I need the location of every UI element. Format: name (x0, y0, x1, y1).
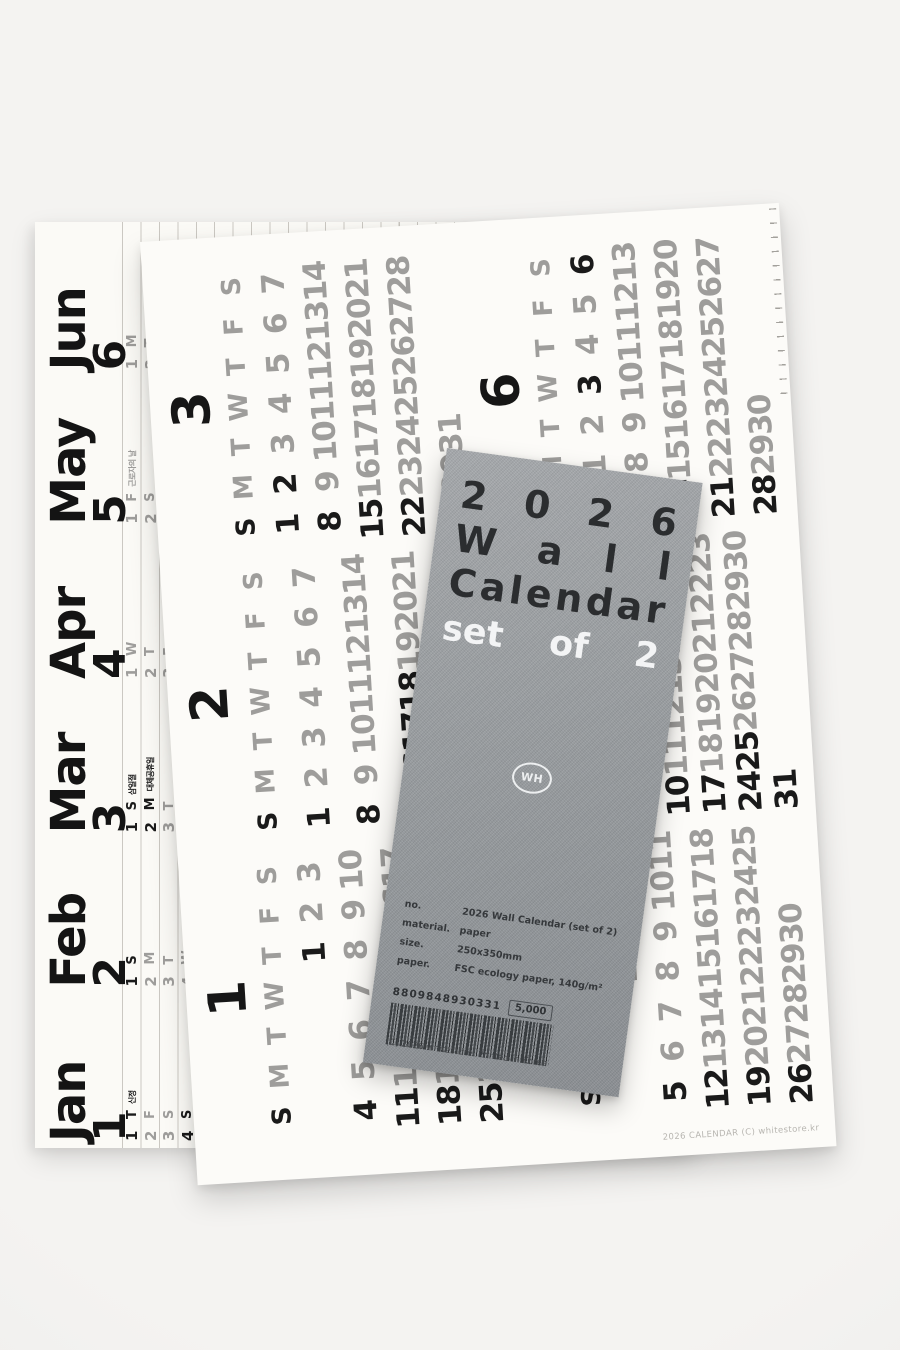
list-day-row: 1F근로자의 날 (123, 376, 141, 530)
date-cell: 13 (696, 1028, 734, 1070)
date-cell: 11 (343, 674, 381, 716)
date-cell: 8 (311, 501, 349, 543)
date-cell: 7 (652, 991, 690, 1033)
date-cell: 5 (657, 1071, 695, 1113)
date-cell: 22 (733, 945, 771, 987)
weekday-letter: T (143, 647, 158, 656)
weekday-header-cell: F (240, 600, 272, 642)
weekday-header-cell: T (243, 640, 275, 682)
date-cell: 13 (299, 300, 337, 342)
date-cell (448, 374, 450, 414)
date-cell: 19 (741, 1066, 779, 1108)
date-cell: 16 (689, 908, 727, 950)
holiday-note: 신정 (127, 1090, 138, 1104)
list-month-label: May5 (35, 376, 132, 530)
day-number: 2 (142, 1125, 160, 1141)
date-cell: 18 (684, 828, 722, 870)
spec-label: size. (399, 936, 458, 955)
date-cell: 14 (336, 553, 374, 595)
date-cell (757, 355, 759, 395)
date-cell: 3 (291, 852, 329, 894)
spec-label: material. (401, 917, 460, 936)
weekday-letter: S (125, 955, 140, 964)
list-day-row: 3S (160, 994, 178, 1148)
date-cell: 20 (388, 590, 426, 632)
date-cell: 26 (727, 690, 765, 732)
title-glyph: 6 (648, 499, 680, 546)
list-month-label: Feb2 (35, 839, 132, 993)
title-glyph: set (440, 608, 506, 657)
date-cell (633, 1074, 635, 1114)
date-cell: 11 (389, 1087, 427, 1129)
day-number: 1 (123, 662, 141, 678)
date-cell: 28 (722, 610, 760, 652)
date-cell: 26 (782, 1063, 820, 1105)
date-cell: 23 (393, 456, 431, 498)
date-cell: 13 (606, 241, 644, 283)
date-cell: 25 (726, 825, 764, 867)
title-glyph: d (583, 579, 616, 626)
date-cell: 7 (255, 263, 293, 305)
date-cell: 21 (686, 612, 724, 654)
date-cell: 23 (731, 905, 769, 947)
title-glyph: C (446, 560, 480, 607)
date-cell: 25 (473, 1082, 511, 1124)
date-cell (788, 864, 790, 904)
date-cell (630, 1034, 632, 1074)
date-cell (440, 254, 442, 294)
day-number: 2 (142, 971, 160, 987)
weekday-header-cell: S (230, 506, 262, 548)
weekday-header-cell: S (525, 247, 557, 289)
date-cell: 3 (295, 717, 333, 759)
date-cell: 18 (693, 733, 731, 775)
weekday-header-cell: M (228, 466, 260, 508)
date-cell: 11 (611, 322, 649, 364)
holiday-note: 근로자의 날 (127, 450, 138, 487)
date-cell: 31 (767, 768, 805, 810)
date-cell: 19 (343, 338, 381, 380)
date-cell: 14 (297, 260, 335, 302)
date-cell: 2 (574, 404, 612, 446)
card-title: 2026WallCalendarsetof2 (440, 473, 680, 679)
date-cell: 27 (690, 236, 728, 278)
date-cell (321, 1053, 323, 1093)
date-cell (776, 609, 778, 649)
list-day-row: 1M (123, 222, 141, 376)
date-cell (778, 649, 780, 689)
date-cell (443, 294, 445, 334)
date-cell: 28 (778, 983, 816, 1025)
date-cell: 9 (616, 402, 654, 444)
date-cell: 11 (304, 380, 342, 422)
date-cell: 20 (688, 653, 726, 695)
title-glyph: of (547, 623, 591, 669)
weekday-header-cell: W (223, 386, 255, 428)
list-day-row: 1S삼일절 (123, 685, 141, 839)
day-number: 2 (142, 816, 160, 832)
date-cell: 25 (388, 375, 426, 417)
weekday-letter: S (162, 1110, 177, 1119)
date-cell: 4 (293, 677, 331, 719)
weekday-header-cell: W (532, 367, 564, 409)
date-cell (323, 1093, 325, 1133)
weekday-header-cell: T (257, 935, 289, 977)
weekday-header-cell: T (262, 1015, 294, 1057)
date-cell: 13 (338, 594, 376, 636)
weekday-header-cell: W (259, 975, 291, 1017)
date-cell (316, 973, 318, 1013)
date-cell: 9 (647, 910, 685, 952)
date-cell: 17 (348, 418, 386, 460)
date-cell: 21 (736, 985, 774, 1027)
day-number: 3 (160, 1125, 178, 1141)
date-cell (783, 729, 785, 769)
weekday-header-cell: F (254, 895, 286, 937)
date-cell: 4 (569, 324, 607, 366)
weekday-header-cell: S (253, 800, 285, 842)
list-month-label: Mar3 (35, 685, 132, 839)
date-cell: 16 (351, 458, 389, 500)
date-cell: 20 (738, 1025, 776, 1067)
list-day-row: 1W (123, 531, 141, 685)
weekday-letter: M (143, 797, 158, 810)
date-cell: 18 (346, 378, 384, 420)
date-cell: 10 (644, 870, 682, 912)
title-glyph: 2 (632, 635, 662, 679)
list-day-row: 1T신정 (123, 994, 141, 1148)
list-day-row: 2F (141, 994, 159, 1148)
date-cell: 1 (269, 503, 307, 545)
date-cell: 18 (431, 1084, 469, 1126)
date-cell: 29 (744, 434, 782, 476)
date-cell: 19 (650, 279, 688, 321)
title-glyph: l (507, 568, 526, 613)
list-day-row: 2M대체공휴일 (141, 685, 159, 839)
date-cell: 6 (564, 244, 602, 286)
date-cell: 5 (260, 343, 298, 385)
date-cell: 25 (729, 730, 767, 772)
date-cell (445, 334, 447, 374)
date-cell: 6 (288, 597, 326, 639)
date-cell (752, 275, 754, 315)
spec-label: no. (404, 899, 463, 918)
date-cell: 23 (700, 397, 738, 439)
date-cell: 10 (333, 849, 371, 891)
date-cell: 24 (728, 865, 766, 907)
weekday-header-cell: S (238, 560, 270, 602)
weekday-header-cell: F (528, 287, 560, 329)
list-day-row: 2M (141, 839, 159, 993)
date-cell: 30 (773, 903, 811, 945)
title-glyph: r (643, 587, 668, 633)
date-cell: 15 (353, 498, 391, 540)
day-number: 2 (142, 662, 160, 678)
date-cell: 26 (385, 335, 423, 377)
date-cell: 9 (335, 889, 373, 931)
date-cell: 21 (705, 477, 743, 519)
title-glyph: a (614, 583, 645, 630)
date-cell: 28 (380, 255, 418, 297)
date-cell: 17 (686, 868, 724, 910)
title-glyph: 2 (584, 490, 616, 537)
date-cell (750, 235, 752, 275)
date-cell: 8 (350, 794, 388, 836)
list-day-row: 3T (160, 839, 178, 993)
date-cell: 24 (390, 415, 428, 457)
product-photo: { "colors": { "backdrop": "#f1f0ee", "pa… (0, 0, 900, 1350)
date-cell: 2 (297, 757, 335, 799)
weekday-header-cell: S (216, 266, 248, 308)
date-cell: 15 (691, 948, 729, 990)
date-cell (318, 1013, 320, 1053)
weekday-letter: M (143, 952, 158, 965)
title-glyph: n (553, 574, 586, 621)
date-cell: 12 (301, 340, 339, 382)
day-number: 1 (123, 816, 141, 832)
title-glyph: W (452, 516, 500, 565)
date-cell: 10 (660, 775, 698, 817)
list-month-label: Jan1 (35, 994, 132, 1148)
date-cell: 17 (655, 359, 693, 401)
title-glyph: l (655, 544, 674, 589)
date-cell: 30 (742, 394, 780, 436)
date-cell: 22 (702, 437, 740, 479)
title-glyph: 2 (458, 473, 490, 520)
date-cell: 8 (337, 929, 375, 971)
date-cell (781, 689, 783, 729)
date-cell: 7 (285, 557, 323, 599)
holiday-note: 대체공휴일 (145, 757, 156, 791)
weekday-header-cell: M (264, 1055, 296, 1097)
date-cell: 24 (697, 356, 735, 398)
title-glyph: 0 (521, 481, 553, 528)
list-month-label: Jun6 (35, 222, 132, 376)
date-cell: 25 (695, 316, 733, 358)
date-cell (755, 315, 757, 355)
date-cell: 20 (648, 239, 686, 281)
month-table: SMTWTFS123456789101112131415161718192021… (210, 252, 479, 548)
date-cell: 9 (309, 461, 347, 503)
title-glyph: a (477, 564, 508, 611)
date-cell: 1 (300, 797, 338, 839)
weekday-letter: M (125, 334, 140, 347)
date-cell: 18 (653, 319, 691, 361)
date-cell: 5 (290, 637, 328, 679)
date-cell: 27 (724, 650, 762, 692)
weekday-header-cell: T (221, 346, 253, 388)
date-cell: 30 (717, 530, 755, 572)
date-cell: 21 (386, 550, 424, 592)
date-cell: 8 (649, 950, 687, 992)
day-number: 1 (123, 1125, 141, 1141)
weekday-header-cell: T (225, 426, 257, 468)
date-cell: 2 (267, 463, 305, 505)
weekday-letter: T (162, 956, 177, 965)
date-cell: 2 (293, 892, 331, 934)
date-cell: 22 (395, 496, 433, 538)
title-glyph: e (523, 570, 555, 617)
spec-label: paper. (396, 955, 455, 974)
day-number: 1 (123, 508, 141, 524)
date-cell: 6 (257, 303, 295, 345)
wh-logo: WH (510, 760, 554, 796)
weekday-header-cell: T (530, 327, 562, 369)
date-cell: 10 (613, 362, 651, 404)
date-cell: 14 (694, 988, 732, 1030)
weekday-letter: F (125, 493, 140, 502)
day-number: 1 (123, 353, 141, 369)
weekday-header-cell: M (250, 760, 282, 802)
date-cell (786, 824, 788, 864)
weekday-header-cell: T (535, 407, 567, 449)
weekday-letter: T (125, 1110, 140, 1119)
weekday-header-cell: T (248, 720, 280, 762)
date-cell: 28 (746, 474, 784, 516)
date-cell: 12 (699, 1068, 737, 1110)
date-cell: 27 (383, 295, 421, 337)
date-cell: 3 (571, 364, 609, 406)
grid-month-3: 3SMTWTFS12345678910111213141516171819202… (156, 248, 483, 555)
date-cell: 27 (780, 1023, 818, 1065)
date-cell: 4 (262, 383, 300, 425)
date-cell: 16 (658, 399, 696, 441)
card-specs: no.2026 Wall Calendar (set of 2)material… (396, 899, 629, 997)
date-cell: 10 (306, 421, 344, 463)
date-cell (773, 569, 775, 609)
weekday-letter: S (125, 801, 140, 810)
date-cell: 29 (775, 943, 813, 985)
date-cell: 15 (660, 439, 698, 481)
date-cell: 20 (341, 298, 379, 340)
date-cell: 24 (732, 771, 770, 813)
date-cell: 12 (608, 281, 646, 323)
date-cell: 29 (719, 570, 757, 612)
weekday-header-cell: S (252, 855, 284, 897)
date-cell: 12 (340, 634, 378, 676)
weekday-header-cell: F (218, 306, 250, 348)
date-cell: 17 (696, 773, 734, 815)
date-cell: 4 (347, 1090, 385, 1132)
date-cell: 5 (566, 284, 604, 326)
date-cell: 3 (264, 423, 302, 465)
list-day-row: 2T (141, 531, 159, 685)
day-number: 1 (123, 971, 141, 987)
weekday-letter: W (125, 642, 140, 656)
date-cell: 1 (296, 932, 334, 974)
title-glyph: l (601, 537, 620, 582)
list-day-row: 1S (123, 839, 141, 993)
date-cell: 6 (654, 1031, 692, 1073)
date-cell: 19 (691, 693, 729, 735)
date-cell: 21 (338, 258, 376, 300)
holiday-note: 삼일절 (127, 774, 138, 795)
day-number: 3 (160, 971, 178, 987)
weekday-header-cell: W (245, 680, 277, 722)
date-cell: 9 (348, 754, 386, 796)
title-glyph: a (534, 527, 565, 574)
list-month-label: Apr4 (35, 531, 132, 685)
date-cell (771, 529, 773, 569)
date-cell: 26 (692, 276, 730, 318)
date-cell: 10 (345, 714, 383, 756)
weekday-header-cell: S (266, 1095, 298, 1137)
weekday-letter: F (143, 1110, 158, 1119)
price-badge: 5,000 (508, 1000, 553, 1022)
